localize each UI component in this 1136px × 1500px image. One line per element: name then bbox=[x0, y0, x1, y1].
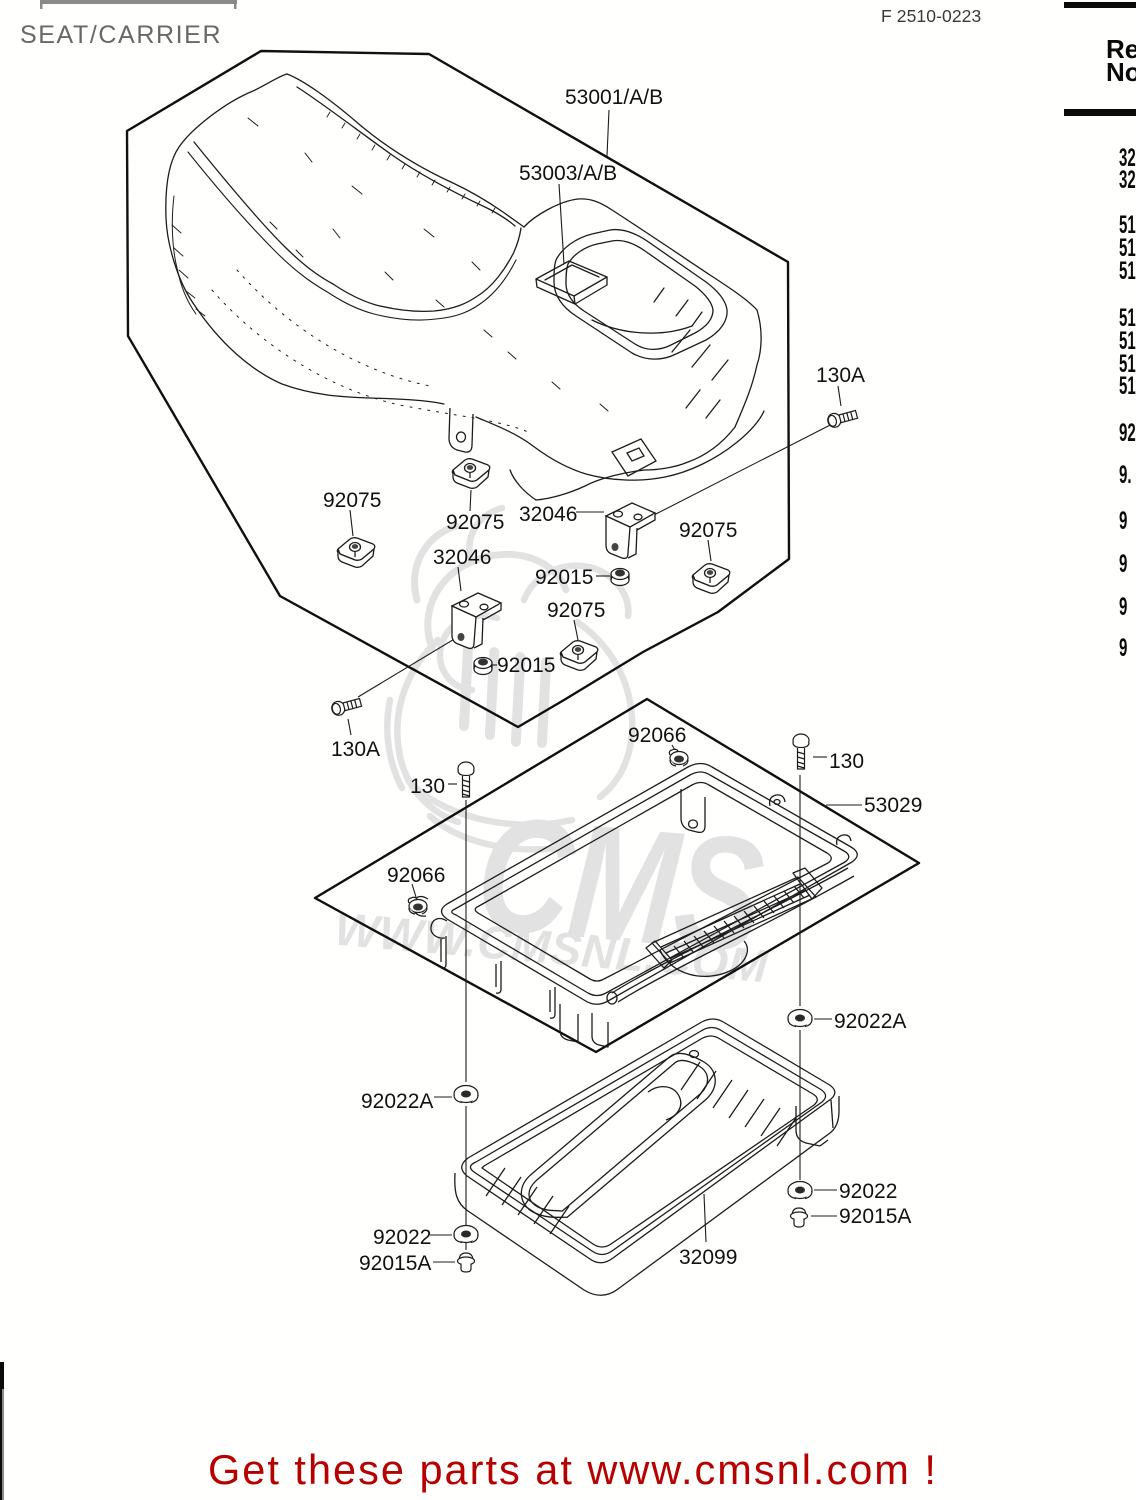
svg-text:92015A: 92015A bbox=[359, 1252, 431, 1275]
svg-text:32046: 32046 bbox=[433, 546, 491, 569]
svg-text:92022: 92022 bbox=[839, 1180, 897, 1203]
svg-text:53029: 53029 bbox=[864, 794, 922, 817]
svg-text:53001/A/B: 53001/A/B bbox=[565, 86, 663, 109]
svg-text:92075: 92075 bbox=[323, 489, 381, 512]
svg-text:130A: 130A bbox=[816, 364, 865, 387]
svg-text:92015: 92015 bbox=[535, 566, 593, 589]
svg-text:92066: 92066 bbox=[387, 864, 445, 887]
svg-text:130A: 130A bbox=[331, 738, 380, 761]
svg-text:92022A: 92022A bbox=[834, 1010, 906, 1033]
svg-text:32046: 32046 bbox=[519, 503, 577, 526]
svg-text:92066: 92066 bbox=[628, 724, 686, 747]
svg-text:92075: 92075 bbox=[679, 519, 737, 542]
svg-text:92075: 92075 bbox=[446, 511, 504, 534]
svg-text:92022: 92022 bbox=[373, 1226, 431, 1249]
svg-text:32099: 32099 bbox=[679, 1246, 737, 1269]
svg-text:130: 130 bbox=[410, 775, 445, 798]
svg-text:92022A: 92022A bbox=[361, 1090, 433, 1113]
svg-text:130: 130 bbox=[829, 750, 864, 773]
svg-text:92015: 92015 bbox=[497, 654, 555, 677]
svg-text:92075: 92075 bbox=[547, 599, 605, 622]
svg-text:92015A: 92015A bbox=[839, 1205, 911, 1228]
svg-text:53003/A/B: 53003/A/B bbox=[519, 162, 617, 185]
